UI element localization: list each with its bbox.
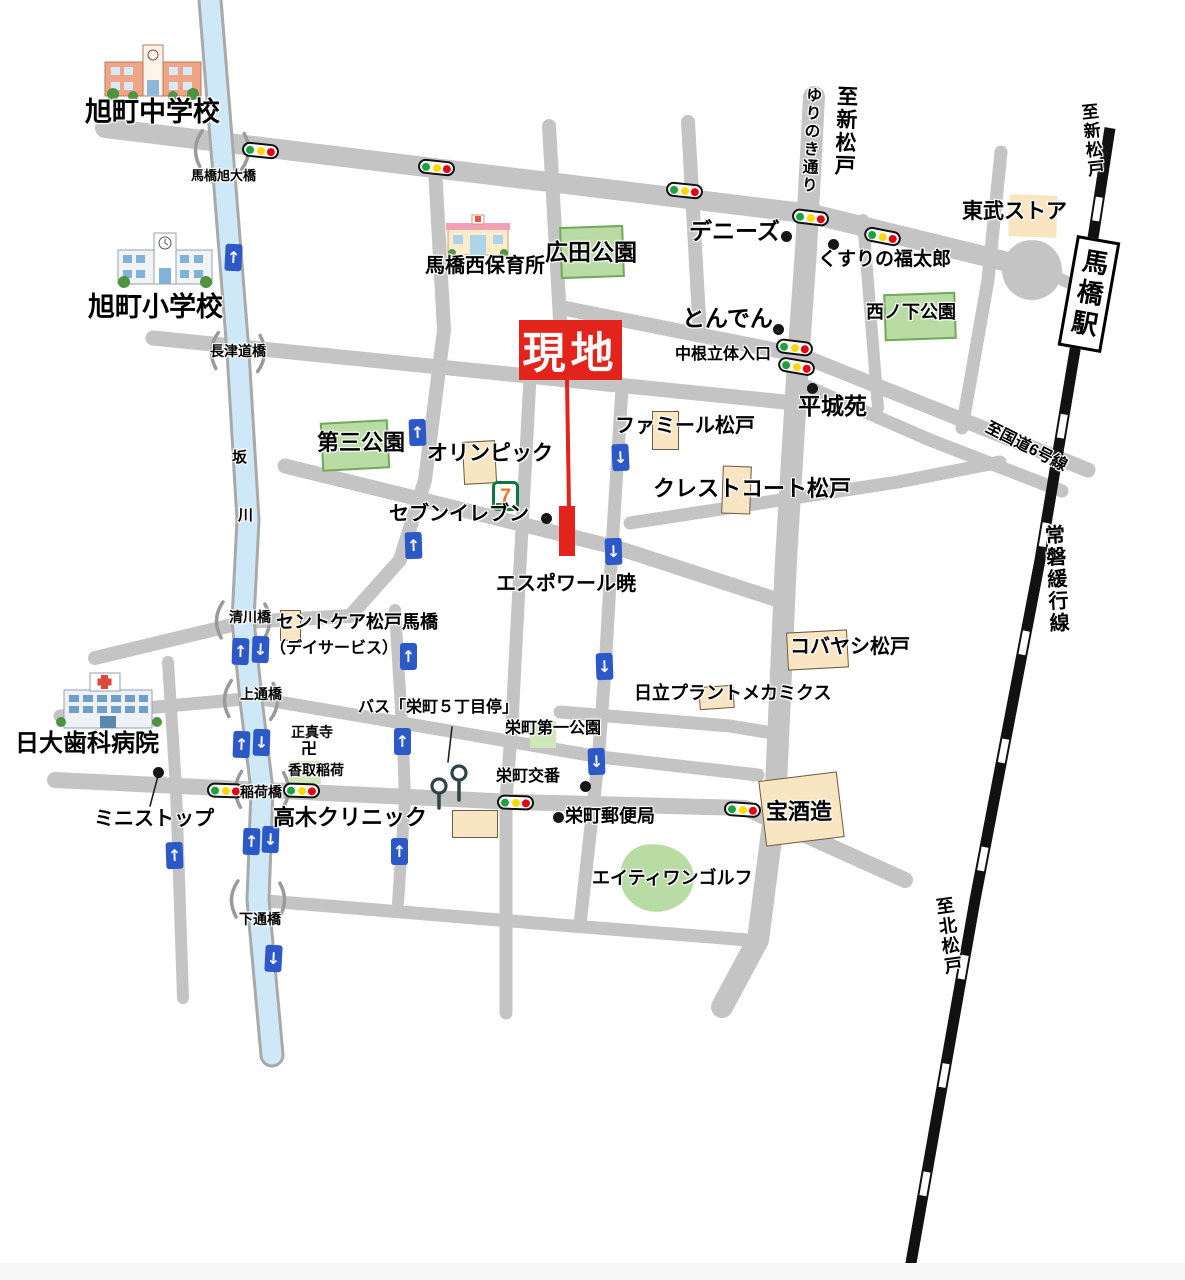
takagi-clinic-label: 高木クリニック	[273, 806, 427, 829]
traffic-light-icon	[497, 794, 535, 810]
bus-sakaemachi-5chome-stop-label: バス「栄町５丁目停」	[358, 700, 518, 717]
one-way-up-arrow-icon: ↑	[394, 728, 411, 755]
saintcare-matsudo-mabashi-label: セントケア松戸馬橋	[276, 613, 438, 632]
dennys-dot	[781, 231, 792, 242]
site-pointer-line	[567, 380, 569, 508]
road-network	[0, 0, 1185, 1280]
one-way-up-arrow-icon: ↑	[243, 828, 261, 856]
sakaemachi-post-office-dot	[553, 812, 564, 823]
nakane-rittai-entrance-label: 中根立体入口	[675, 347, 771, 364]
one-way-up-arrow-icon: ↑	[224, 244, 242, 272]
heijoen-label: 平城苑	[798, 394, 867, 418]
one-way-up-arrow-icon: ↑	[409, 419, 427, 447]
saka-river-label-1: 坂	[232, 450, 247, 466]
kusuri-no-fukutaro-label: くすりの福太郎	[818, 250, 951, 270]
site-marker: 現地	[519, 320, 622, 380]
one-way-down-arrow-icon: ↓	[264, 945, 282, 973]
site-label: 現地	[523, 319, 619, 381]
traffic-light-icon	[283, 782, 321, 798]
sakaemachi-koban-label: 栄町交番	[496, 769, 560, 786]
shimotsuri-bridge-label: 下通橋	[239, 912, 281, 927]
takagi-building	[452, 810, 498, 838]
traffic-light-icon	[207, 782, 245, 798]
junior-high-school-icon	[103, 42, 203, 100]
sakaemachi-daiichi-park-label: 栄町第一公園	[505, 721, 601, 738]
one-way-up-arrow-icon: ↑	[400, 643, 417, 670]
seven-eleven-label: セブンイレブン	[389, 504, 529, 525]
map-canvas: 現地 馬橋駅	[0, 0, 1185, 1280]
kamitsuri-bridge-label: 上通橋	[240, 687, 282, 702]
one-way-down-arrow-icon: ↓	[611, 444, 629, 472]
olympic-label: オリンピック	[427, 443, 553, 465]
one-way-down-arrow-icon: ↓	[253, 729, 271, 757]
dayservice-label: （デイサービス）	[270, 641, 398, 658]
hospital-icon	[56, 668, 162, 730]
one-way-up-arrow-icon: ↑	[232, 638, 250, 666]
tonden-label: とんでん	[682, 306, 773, 330]
tobu-store-label: 東武ストア	[962, 201, 1067, 223]
daisan-park-label: 第三公園	[317, 431, 405, 454]
one-way-up-arrow-icon: ↑	[391, 838, 408, 865]
nagatsudo-bridge-label: 長津道橋	[210, 344, 266, 359]
hirota-park-label: 広田公園	[545, 240, 637, 264]
sakaemachi-post-office-label: 栄町郵便局	[565, 807, 655, 826]
one-way-down-arrow-icon: ↓	[588, 748, 606, 776]
espoir-akatsuki-label: エスポワール暁	[496, 574, 636, 595]
sakaemachi-koban-dot	[580, 781, 591, 792]
nursery-school-icon	[446, 213, 510, 257]
to-shin-matsudo-road-label: 至新松戸	[832, 85, 857, 178]
one-way-down-arrow-icon: ↓	[605, 538, 623, 566]
nichidai-dental-hospital-label: 日大歯科病院	[15, 731, 159, 756]
famille-matsudo-label: ファミール松戸	[615, 416, 755, 437]
mabashi-nishi-hoikusho-label: 馬橋西保育所	[425, 256, 545, 277]
bus-stop-icon	[432, 779, 446, 793]
kobayashi-matsudo-label: コバヤシ松戸	[790, 637, 910, 658]
mabashi-asahi-ohashi-label: 馬橋旭大橋	[191, 169, 256, 183]
one-way-down-arrow-icon: ↓	[596, 653, 614, 681]
kiyokawa-bridge-label: 清川橋	[229, 610, 271, 625]
seven-eleven-dot	[541, 513, 552, 524]
page-edge	[0, 1263, 1185, 1280]
hitachi-plant-mechanics-label: 日立プラントメカミクス	[634, 684, 831, 703]
shimotsuri-bridge-mark	[231, 881, 238, 917]
tonden-dot	[773, 324, 784, 335]
ministop-dot	[153, 767, 164, 778]
traffic-light-icon	[724, 801, 762, 819]
joban-local-line-label: 常磐緩行線	[1041, 524, 1068, 635]
shoshinji-temple-label: 正真寺	[291, 725, 333, 740]
asahicho-elementary-label: 旭町小学校	[88, 293, 223, 321]
dennys-label: デニーズ	[689, 219, 780, 243]
bus-stop-icon	[452, 766, 466, 780]
elementary-school-icon	[116, 230, 214, 288]
saka-river-label-2: 川	[238, 508, 253, 524]
takara-shuzo-label: 宝酒造	[766, 800, 832, 823]
crest-court-matsudo-label: クレストコート松戸	[653, 477, 851, 500]
katori-inari-label: 香取稲荷	[288, 763, 344, 778]
site-location-bar	[559, 506, 575, 556]
nishinoshita-park-label: 西ノ下公園	[866, 303, 956, 322]
one-way-down-arrow-icon: ↓	[252, 636, 270, 664]
inari-bridge-label: 稲荷橋	[240, 785, 282, 800]
asahicho-junior-high-label: 旭町中学校	[85, 98, 220, 126]
one-way-up-arrow-icon: ↑	[166, 842, 184, 870]
one-way-up-arrow-icon: ↑	[405, 532, 423, 560]
ministop-label: ミニストップ	[94, 809, 214, 830]
one-way-up-arrow-icon: ↑	[233, 731, 251, 759]
manji-symbol: 卍	[301, 742, 317, 759]
eighty-one-golf-label: エイティワンゴルフ	[592, 869, 753, 888]
